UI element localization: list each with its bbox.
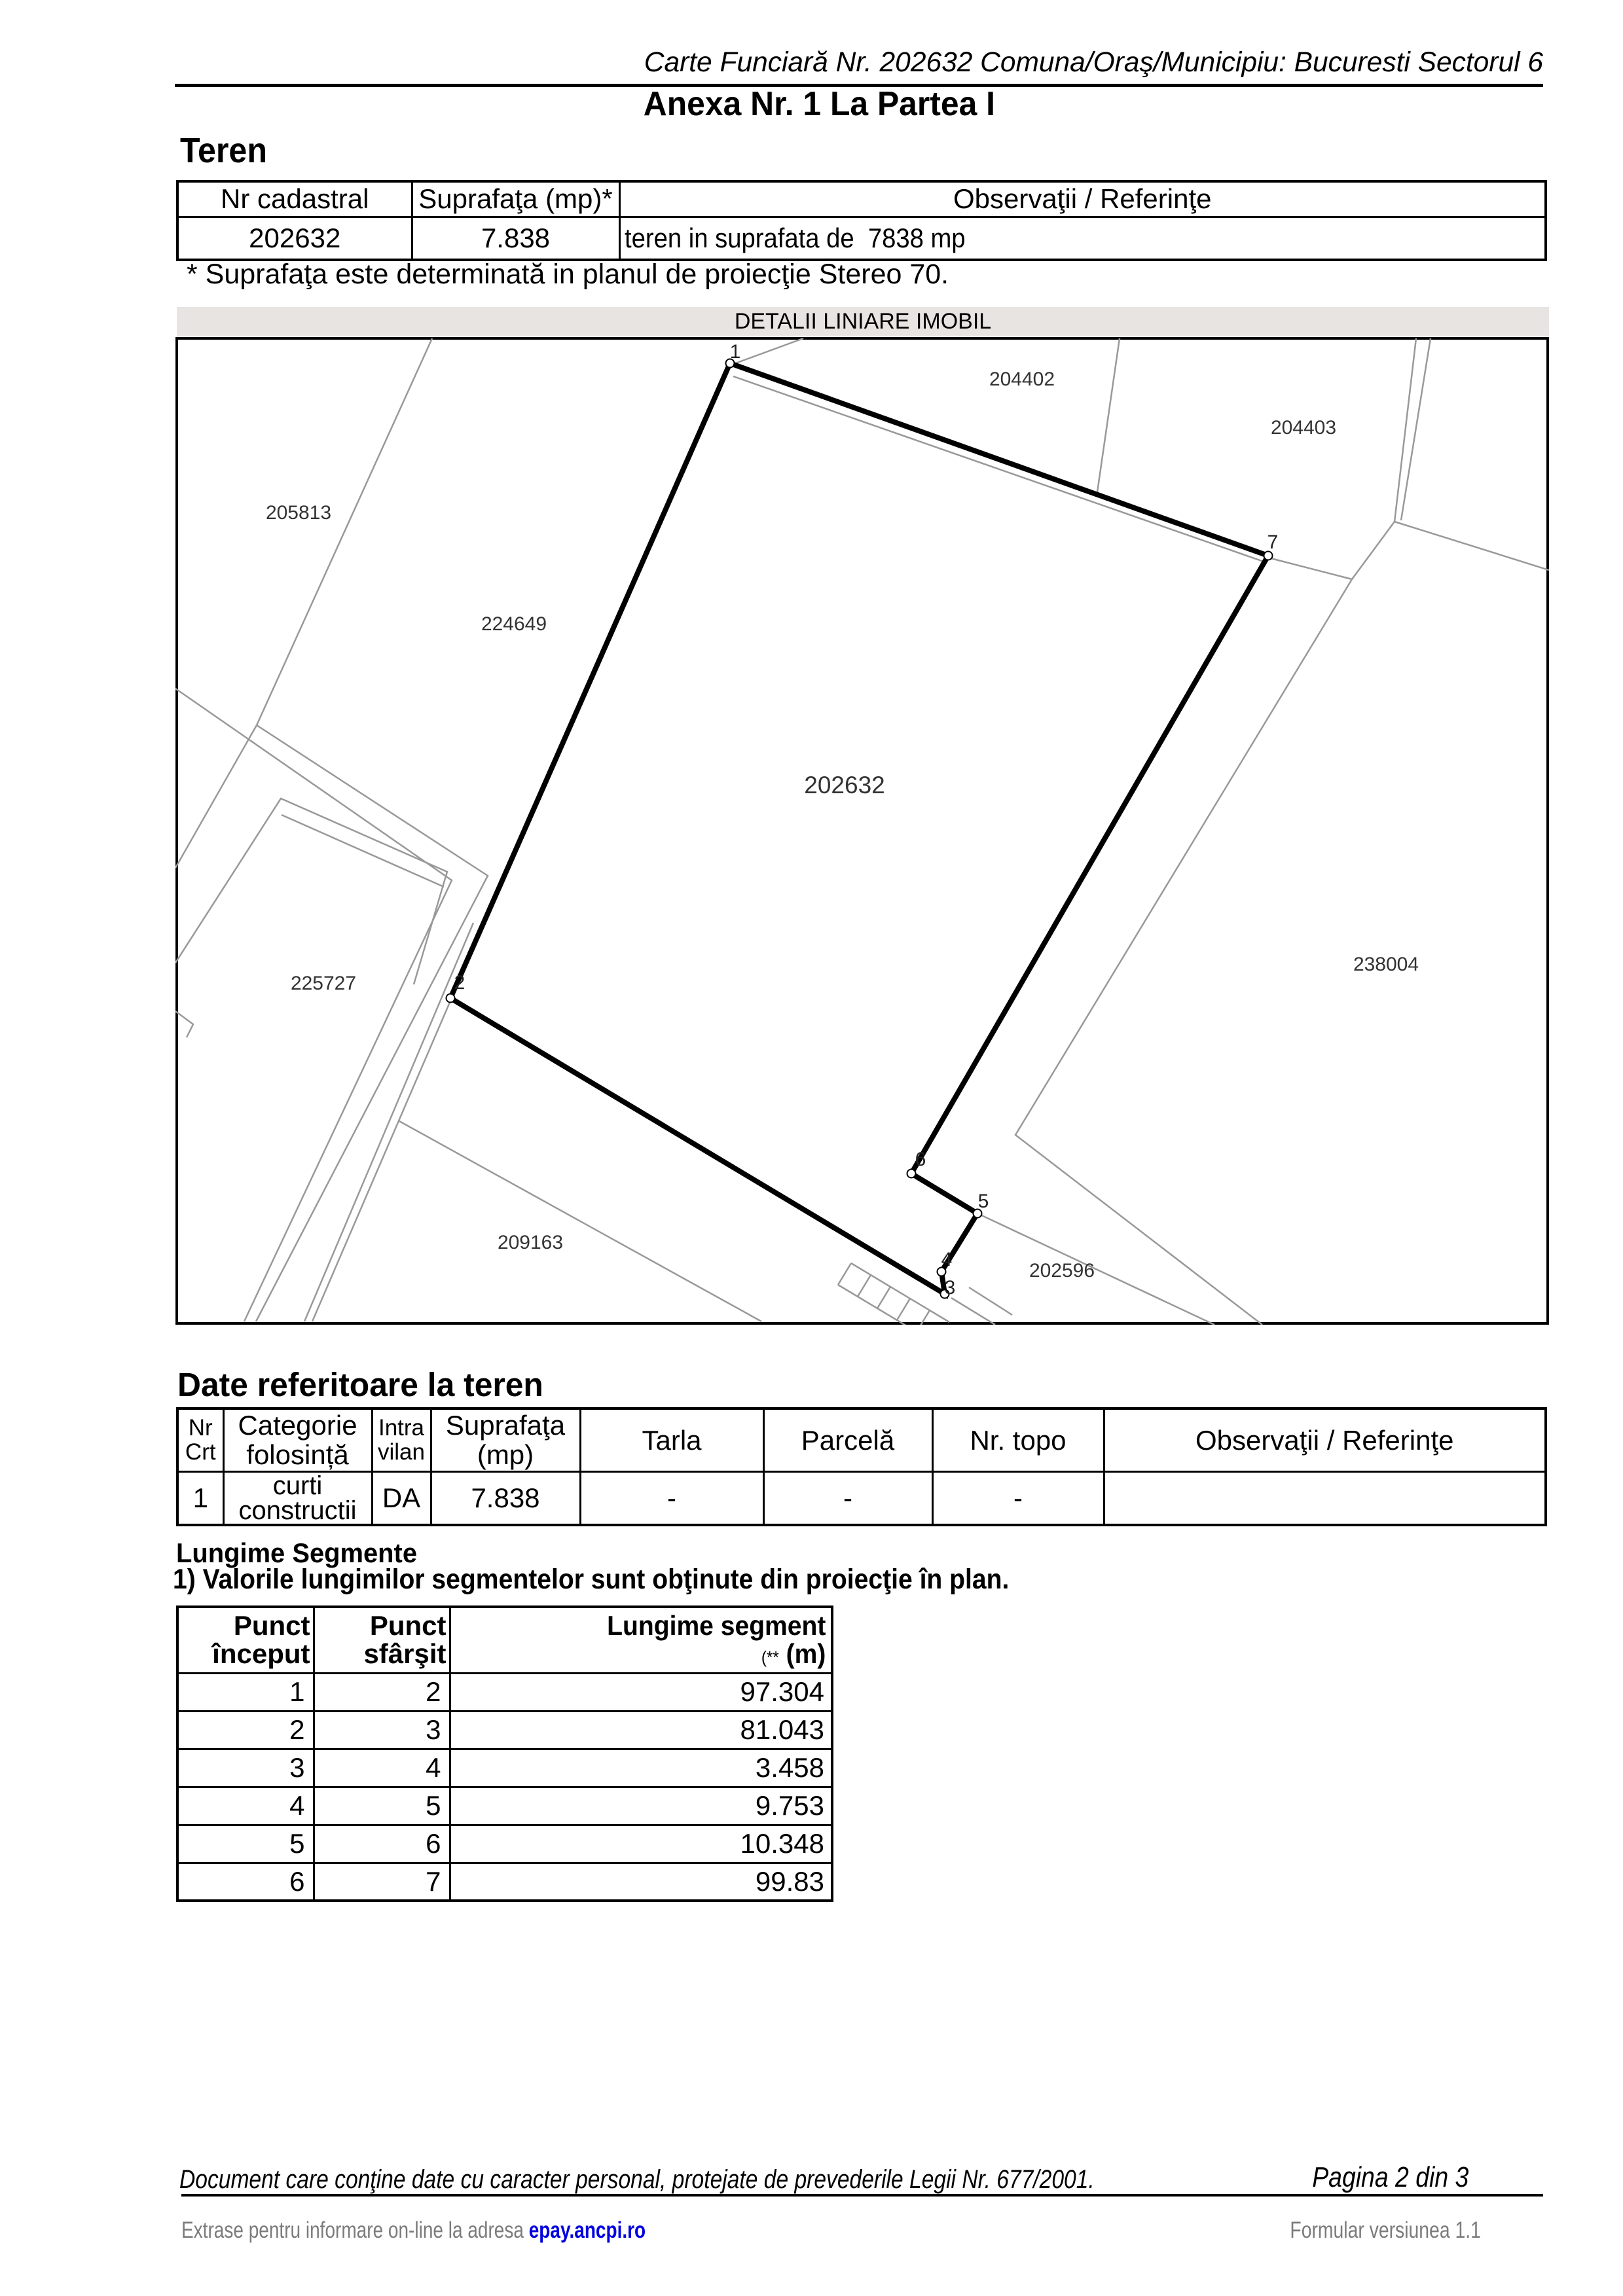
svg-text:3: 3 bbox=[945, 1277, 956, 1299]
svg-text:224649: 224649 bbox=[481, 613, 547, 635]
svg-text:204402: 204402 bbox=[989, 368, 1055, 390]
svg-text:202632: 202632 bbox=[804, 772, 884, 798]
svg-text:209163: 209163 bbox=[498, 1232, 563, 1253]
svg-text:6: 6 bbox=[915, 1149, 926, 1170]
svg-text:202596: 202596 bbox=[1029, 1260, 1095, 1282]
svg-text:225727: 225727 bbox=[291, 973, 356, 994]
svg-text:5: 5 bbox=[978, 1191, 989, 1212]
svg-text:7: 7 bbox=[1267, 531, 1279, 553]
svg-text:2: 2 bbox=[454, 972, 465, 994]
svg-text:4: 4 bbox=[941, 1249, 953, 1270]
svg-text:1: 1 bbox=[730, 341, 741, 363]
svg-text:238004: 238004 bbox=[1353, 954, 1419, 975]
svg-text:204403: 204403 bbox=[1271, 417, 1336, 439]
svg-text:205813: 205813 bbox=[266, 502, 331, 524]
